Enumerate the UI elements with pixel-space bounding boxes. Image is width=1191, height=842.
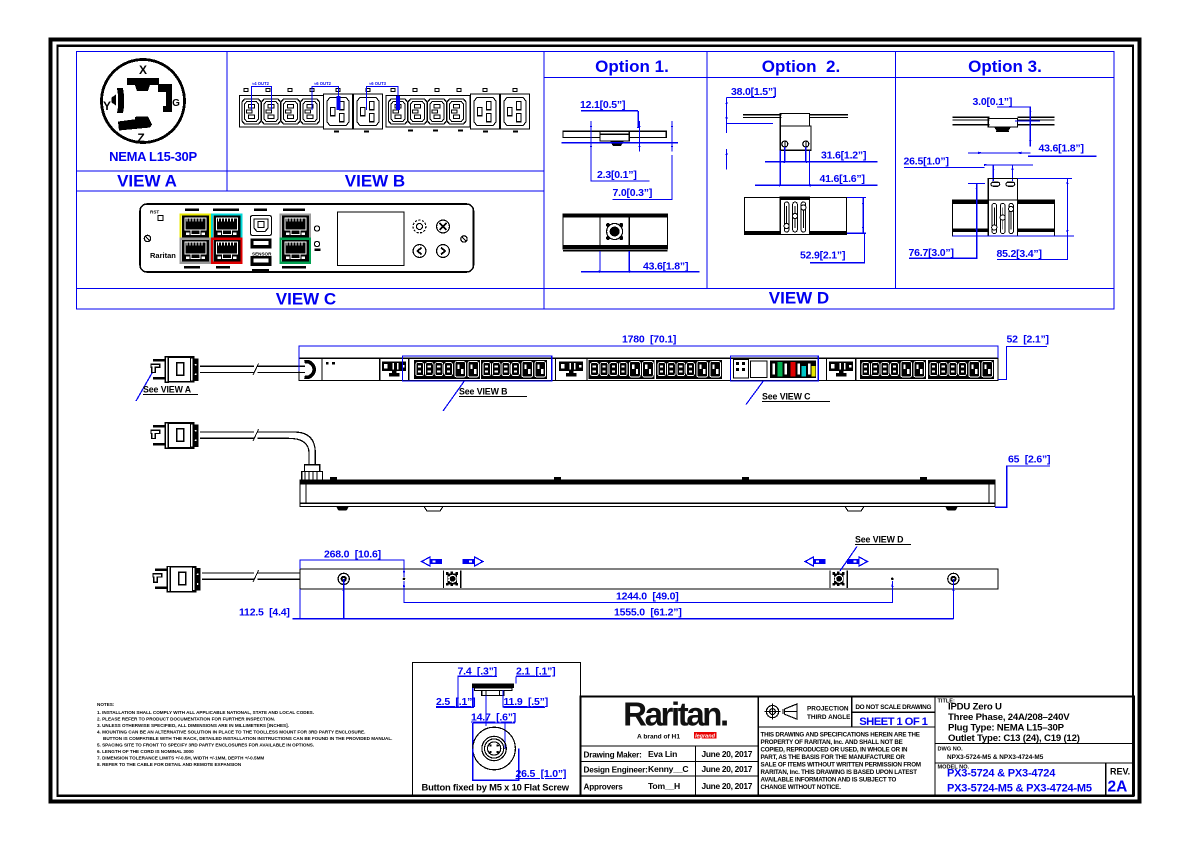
svg-text:G: G <box>172 98 180 109</box>
svg-text:≈4 OUT2: ≈4 OUT2 <box>252 81 270 86</box>
svg-text:Eva Lin: Eva Lin <box>648 749 677 759</box>
svg-text:Tom__H: Tom__H <box>648 781 680 791</box>
svg-text:Outlet Type: C13 (24), C19 (12: Outlet Type: C13 (24), C19 (12) <box>948 733 1080 744</box>
svg-text:Y: Y <box>103 99 111 113</box>
svg-text:26.5[1.0”]: 26.5[1.0”] <box>904 156 949 168</box>
svg-text:DO NOT SCALE DRAWING: DO NOT SCALE DRAWING <box>855 704 931 711</box>
svg-text:≈6 OUT2: ≈6 OUT2 <box>314 81 332 86</box>
svg-text:2.3[0.1”]: 2.3[0.1”] <box>597 169 637 181</box>
svg-text:COPIED, REPRODUCED OR USED, IN: COPIED, REPRODUCED OR USED, IN WHOLE OR … <box>761 747 909 754</box>
svg-text:1244.0 [49.0]: 1244.0 [49.0] <box>616 591 679 603</box>
svg-text:legrand: legrand <box>695 733 716 739</box>
svg-text:Kenny__C: Kenny__C <box>648 764 688 774</box>
svg-text:PROPERTY OF RARITAN, Inc. AND: PROPERTY OF RARITAN, Inc. AND SHALL NOT … <box>761 739 903 746</box>
svg-text:A brand of Η1: A brand of Η1 <box>637 734 680 741</box>
svg-text:See VIEW B: See VIEW B <box>459 387 507 397</box>
svg-text:Option 3.: Option 3. <box>968 57 1042 76</box>
svg-text:3. UNLESS OTHERWISE SPECIFIED,: 3. UNLESS OTHERWISE SPECIFIED, ALL DIMEN… <box>97 723 289 728</box>
svg-text:38.0[1.5”]: 38.0[1.5”] <box>731 86 776 98</box>
svg-text:7.0[0.3”]: 7.0[0.3”] <box>613 187 653 199</box>
svg-text:IPDU Zero U: IPDU Zero U <box>948 702 1002 713</box>
svg-text:RARITAN, Inc. THIS DRAWING IS: RARITAN, Inc. THIS DRAWING IS BASED UPON… <box>761 769 918 776</box>
svg-text:SENSOR: SENSOR <box>252 252 272 257</box>
svg-text:Plug Type: NEMA L15–30P: Plug Type: NEMA L15–30P <box>948 723 1065 734</box>
svg-text:VIEW B: VIEW B <box>345 172 405 191</box>
svg-text:65 [2.6”]: 65 [2.6”] <box>1008 454 1050 466</box>
svg-text:2. PLEASE REFER TO PRODUCT DOC: 2. PLEASE REFER TO PRODUCT DOCUMENTATION… <box>97 717 275 722</box>
svg-text:31.6[1.2”]: 31.6[1.2”] <box>821 150 866 162</box>
svg-text:52.9[2.1”]: 52.9[2.1”] <box>800 250 845 262</box>
svg-text:AVAILABLE INFORMATION AND IS S: AVAILABLE INFORMATION AND IS SUBJECT TO <box>761 777 897 784</box>
svg-text:BUTTON IS COMPATIBLE WITH THE: BUTTON IS COMPATIBLE WITH THE RACK, DETA… <box>103 736 392 741</box>
svg-text:PX3-5724-M5 & PX3-4724-M5: PX3-5724-M5 & PX3-4724-M5 <box>947 783 1092 795</box>
svg-text:14.7 [.6”]: 14.7 [.6”] <box>471 712 516 724</box>
svg-text:NOTES:: NOTES: <box>97 702 115 707</box>
svg-text:26.5 [1.0”]: 26.5 [1.0”] <box>516 768 567 780</box>
svg-text:8. REFER TO THE CABLE FOR DETA: 8. REFER TO THE CABLE FOR DETAIL AND REM… <box>97 762 242 767</box>
svg-text:NPX3-5724-M5 & NPX3-4724-M5: NPX3-5724-M5 & NPX3-4724-M5 <box>947 754 1044 761</box>
svg-text:See VIEW A: See VIEW A <box>143 385 192 395</box>
svg-text:X: X <box>139 63 147 77</box>
svg-text:76.7[3.0”]: 76.7[3.0”] <box>909 247 954 259</box>
svg-text:85.2[3.4”]: 85.2[3.4”] <box>997 248 1042 260</box>
svg-text:Design Engineer:: Design Engineer: <box>584 766 648 775</box>
svg-text:Option 2.: Option 2. <box>762 57 840 76</box>
svg-text:VIEW A: VIEW A <box>117 172 177 191</box>
svg-text:SALE OF ITEMS WITHOUT WRITTEN: SALE OF ITEMS WITHOUT WRITTEN PERMISSION… <box>761 762 921 769</box>
svg-text:7.4 [.3”]: 7.4 [.3”] <box>458 666 497 678</box>
svg-text:12.1[0.5”]: 12.1[0.5”] <box>580 99 625 111</box>
svg-text:1555.0 [61.2”]: 1555.0 [61.2”] <box>614 607 682 619</box>
svg-text:RST: RST <box>150 210 159 215</box>
svg-text:REV.: REV. <box>1110 767 1130 777</box>
svg-text:PROJECTION: PROJECTION <box>807 706 849 713</box>
svg-text:41.6[1.6”]: 41.6[1.6”] <box>820 173 865 185</box>
svg-text:≈6 OUT3: ≈6 OUT3 <box>369 81 387 86</box>
svg-text:2.1 [.1”]: 2.1 [.1”] <box>516 666 555 678</box>
svg-text:THIS DRAWING AND SPECIFICATION: THIS DRAWING AND SPECIFICATIONS HEREIN A… <box>761 732 920 739</box>
svg-text:43.6[1.8”]: 43.6[1.8”] <box>643 261 688 273</box>
svg-text:VIEW C: VIEW C <box>276 290 336 309</box>
svg-text:2A: 2A <box>1108 779 1128 796</box>
svg-text:Raritan: Raritan <box>150 251 176 260</box>
svg-text:June 20, 2017: June 20, 2017 <box>702 764 753 774</box>
svg-text:PART, AS THE BASIS FOR THE MAN: PART, AS THE BASIS FOR THE MANUFACTURE O… <box>761 754 906 761</box>
svg-text:See VIEW C: See VIEW C <box>762 392 811 402</box>
svg-text:Button fixed by M5 x 10 Flat S: Button fixed by M5 x 10 Flat Screw <box>422 782 570 793</box>
svg-text:Drawing Maker:: Drawing Maker: <box>584 751 642 760</box>
svg-text:CHANGE WITHOUT NOTICE.: CHANGE WITHOUT NOTICE. <box>761 784 842 791</box>
svg-text:Approvers: Approvers <box>584 783 624 792</box>
svg-text:SHEET 1 OF 1: SHEET 1 OF 1 <box>859 716 927 728</box>
svg-text:2.5 [.1”]: 2.5 [.1”] <box>436 696 475 708</box>
svg-text:1780 [70.1]: 1780 [70.1] <box>622 334 676 346</box>
svg-text:3.0[0.1”]: 3.0[0.1”] <box>973 96 1013 108</box>
svg-text:Raritan.: Raritan. <box>623 696 727 733</box>
svg-text:52 [2.1”]: 52 [2.1”] <box>1007 334 1049 346</box>
svg-text:VIEW D: VIEW D <box>769 289 829 308</box>
svg-text:See VIEW D: See VIEW D <box>855 535 903 545</box>
svg-text:THIRD ANGLE: THIRD ANGLE <box>807 714 851 721</box>
svg-text:Z: Z <box>137 131 144 145</box>
svg-text:6. LENGTH OF THE CORD IS NOMIN: 6. LENGTH OF THE CORD IS NOMINAL 3000 <box>97 749 194 754</box>
svg-text:43.6[1.8”]: 43.6[1.8”] <box>1039 143 1084 155</box>
svg-text:268.0 [10.6]: 268.0 [10.6] <box>324 549 381 561</box>
svg-text:1. INSTALLATION SHALL COMPLY W: 1. INSTALLATION SHALL COMPLY WITH ALL AP… <box>97 710 314 715</box>
svg-text:Option 1.: Option 1. <box>595 57 669 76</box>
svg-text:Three Phase, 24A/208–240V: Three Phase, 24A/208–240V <box>948 712 1070 723</box>
svg-text:7. DIMENSION TOLERANCE LIMITS: 7. DIMENSION TOLERANCE LIMITS +/-0.5H, W… <box>97 756 264 761</box>
svg-text:DWG NO.: DWG NO. <box>938 747 964 753</box>
svg-text:NEMA L15-30P: NEMA L15-30P <box>109 149 197 164</box>
svg-text:112.5 [4.4]: 112.5 [4.4] <box>239 607 290 619</box>
svg-text:5. SPACING SITE TO FRONT TO SP: 5. SPACING SITE TO FRONT TO SPECIFY 3RD … <box>97 743 314 748</box>
svg-text:11.9 [.5”]: 11.9 [.5”] <box>504 696 549 708</box>
svg-text:4. MOUNTING CAN BE AN ALTERNAT: 4. MOUNTING CAN BE AN ALTERNATIVE SOLUTI… <box>97 730 365 735</box>
svg-text:PX3-5724 & PX3-4724: PX3-5724 & PX3-4724 <box>947 768 1056 780</box>
svg-text:June 20, 2017: June 20, 2017 <box>702 781 753 791</box>
svg-text:June 20, 2017: June 20, 2017 <box>702 749 753 759</box>
